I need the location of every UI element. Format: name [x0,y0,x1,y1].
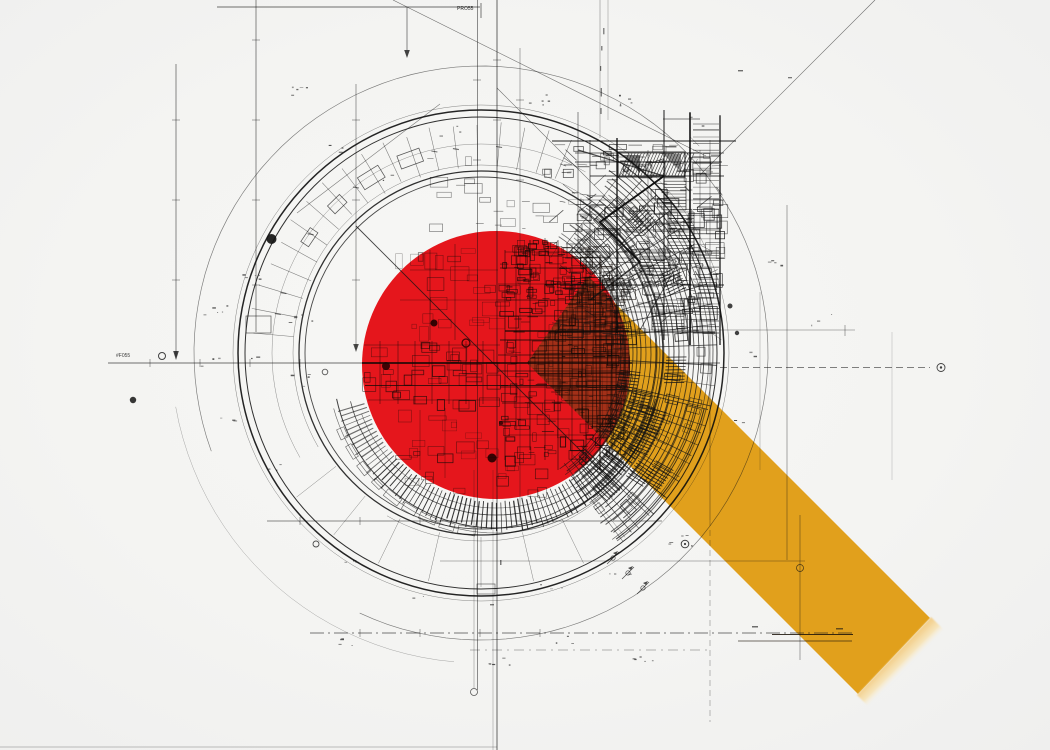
svg-text:#F055: #F055 [116,353,130,359]
svg-text:PRO55: PRO55 [457,6,474,12]
